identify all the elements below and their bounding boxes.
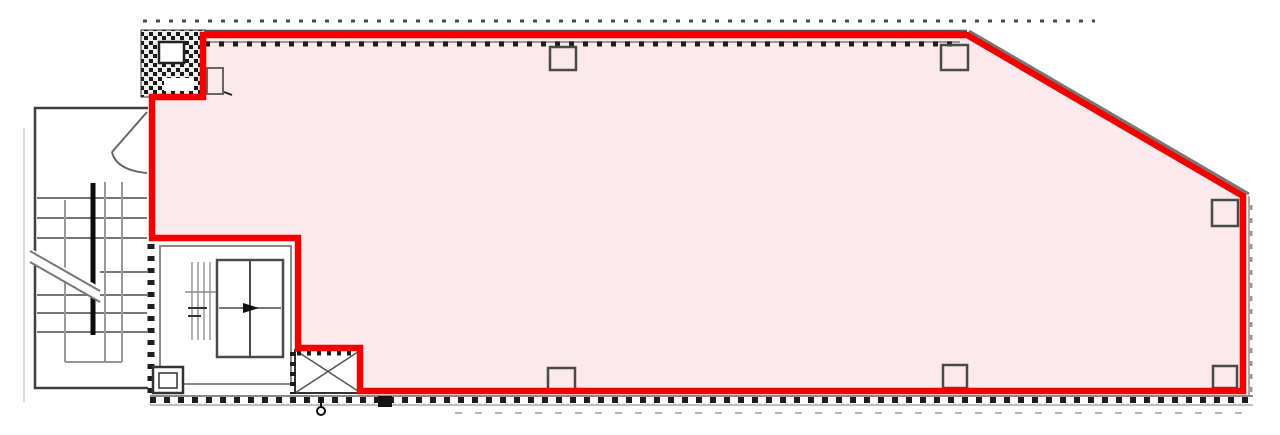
leased-area-fill — [152, 35, 1243, 391]
floor-plan-canvas — [0, 0, 1280, 435]
floor-plan — [0, 0, 1280, 435]
pit-room-outer — [153, 367, 183, 393]
shaft-hatch-block-gap — [164, 78, 194, 91]
entrance-door-swing-arc — [112, 152, 147, 173]
survey-mark-circle — [317, 407, 325, 415]
shaft-hatch-block-inner-square — [159, 42, 184, 63]
entrance-door-leaf — [112, 112, 147, 152]
black-square-marker — [378, 396, 392, 407]
